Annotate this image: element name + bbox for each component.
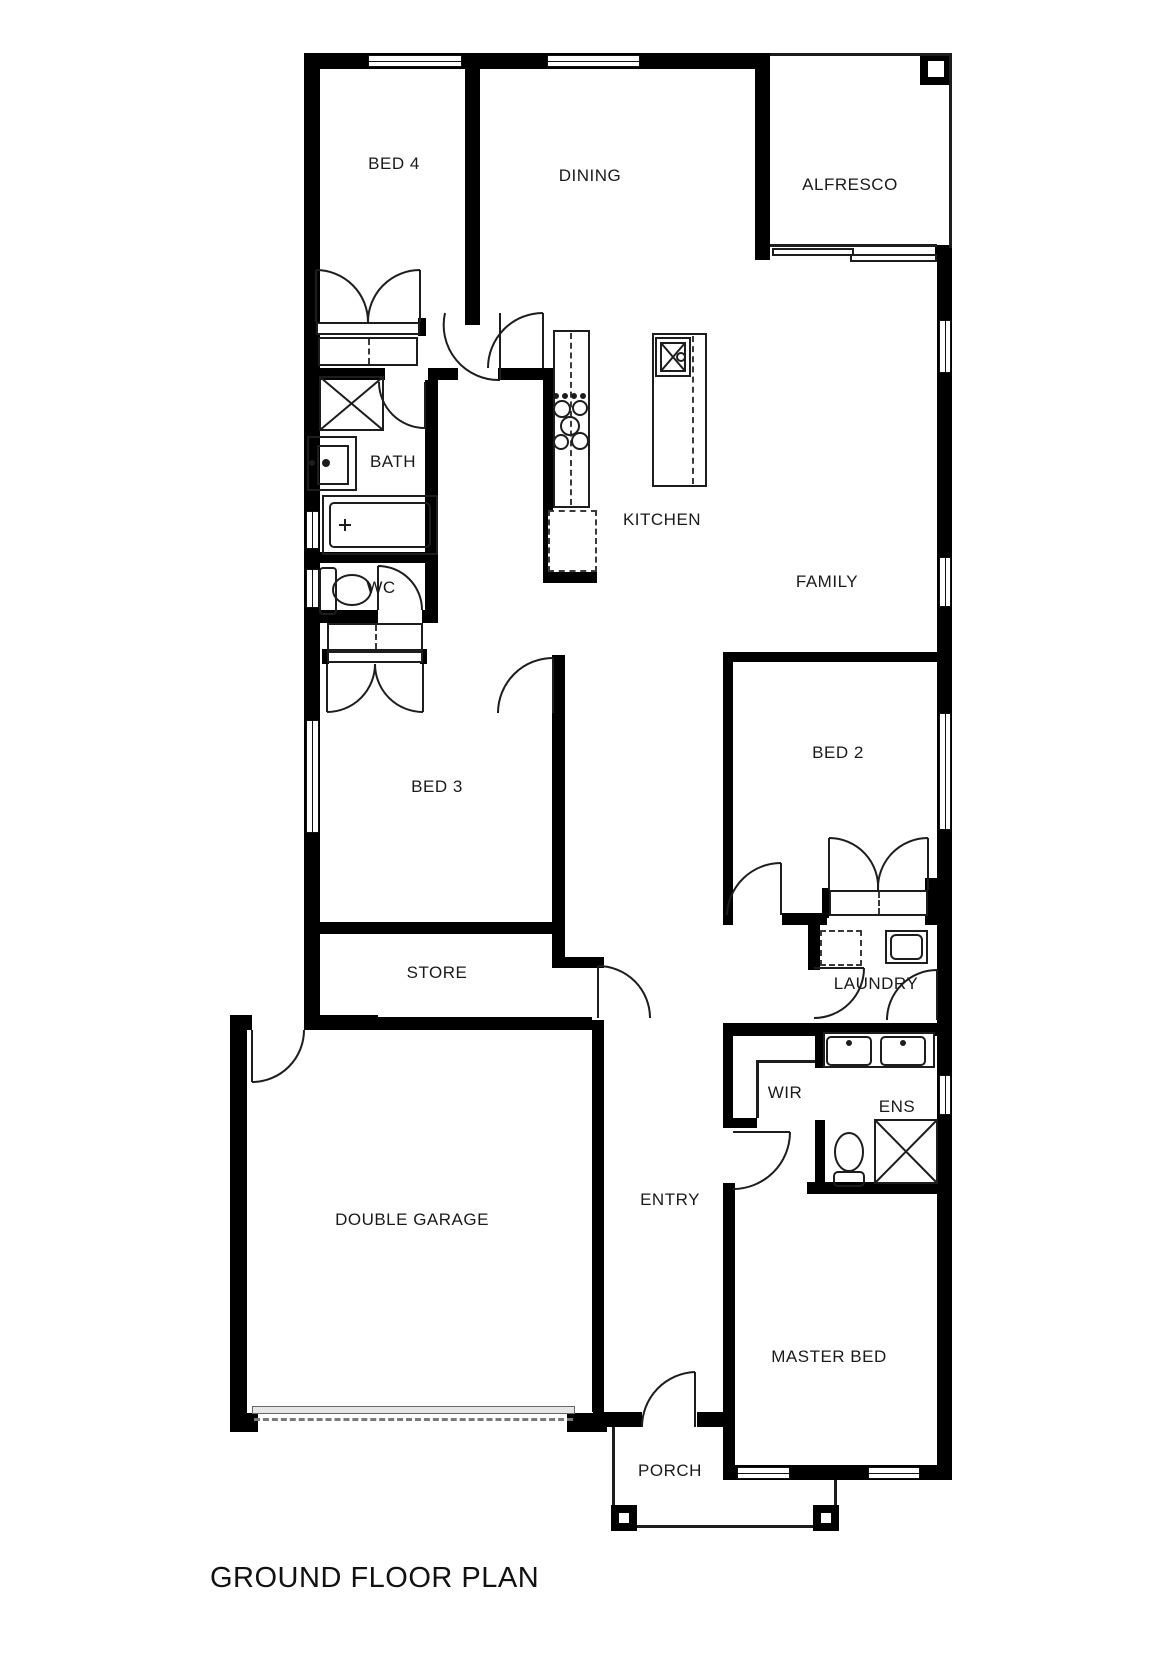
bath-door <box>379 382 425 428</box>
room-label-bath: BATH <box>370 452 416 472</box>
wall-bed2-west <box>723 652 733 925</box>
bed2-robe-cap-left <box>822 888 829 918</box>
window-family-upper <box>939 320 951 373</box>
laundry-tub-basin <box>890 934 923 960</box>
window-bed4 <box>368 55 462 67</box>
room-label-master: MASTER BED <box>771 1347 887 1367</box>
window-dining <box>547 55 640 67</box>
window-bed3 <box>306 720 319 833</box>
wall-wir-south-stub <box>723 1118 757 1128</box>
wall-hall-north-a <box>320 368 385 380</box>
room-label-store: STORE <box>407 963 468 983</box>
wall-laundry-west <box>808 925 820 970</box>
room-label-bed4: BED 4 <box>368 154 420 174</box>
garage-door-swing-line <box>254 1418 573 1421</box>
wall-alfresco-left <box>755 53 770 260</box>
room-label-porch: PORCH <box>638 1461 702 1481</box>
wall-garage-front-left <box>230 1413 258 1432</box>
room-label-entry: ENTRY <box>640 1190 700 1210</box>
porch-post-right <box>813 1505 839 1531</box>
bed2-robe-door-left <box>829 838 878 890</box>
bed3-robe-divider <box>375 625 377 649</box>
stacker-door-panel-2 <box>850 254 937 262</box>
ens-vanity-bench <box>823 1032 935 1068</box>
window-family-lower <box>939 557 951 607</box>
wall-central-jog <box>552 957 604 968</box>
window-bed2 <box>939 713 951 830</box>
wall-right-exterior <box>937 247 952 1480</box>
bed3-robe-door-right <box>375 664 423 712</box>
wall-bath-east <box>425 380 438 623</box>
wir-shelf-line-v <box>756 1060 759 1118</box>
bed3-robe-door-left <box>327 664 375 712</box>
bathtub-icon <box>323 496 437 554</box>
room-label-bed2: BED 2 <box>812 743 864 763</box>
wall-bed3-store <box>320 922 558 934</box>
wall-kitchen-south <box>543 572 597 583</box>
floor-plan: BED 4 DINING ALFRESCO BATH KITCHEN WC FA… <box>0 0 1170 1655</box>
window-ens <box>939 1075 951 1115</box>
alfresco-pillar <box>920 53 952 85</box>
garage-access-door <box>252 1030 304 1082</box>
window-master-right <box>868 1467 920 1479</box>
room-label-ens: ENS <box>879 1097 915 1117</box>
wall-bed4-dining <box>465 69 480 325</box>
alfresco-outline-bottom <box>770 244 937 247</box>
porch-post-left <box>611 1505 637 1531</box>
bed3-door <box>498 658 553 713</box>
bed4-robe-divider <box>368 339 370 364</box>
wall-wc-south-b <box>422 610 438 623</box>
alfresco-outline-top <box>770 53 952 56</box>
wall-bath-wc <box>308 552 438 563</box>
wall-ens-south <box>807 1182 952 1194</box>
wall-store-south <box>378 1017 592 1030</box>
wall-front-b <box>697 1412 723 1427</box>
room-label-laundry: LAUNDRY <box>834 974 918 994</box>
room-label-family: FAMILY <box>796 572 858 592</box>
wall-hall-north-b <box>428 368 458 380</box>
wall-wir-west <box>723 1027 733 1127</box>
wall-bed2-south-b <box>782 913 827 925</box>
wc-toilet-icon <box>320 568 371 614</box>
hall-dining-door <box>488 313 543 368</box>
wall-central-hall <box>552 655 565 957</box>
wall-garage-north-b <box>312 1015 378 1030</box>
bath-shower-icon <box>320 377 383 430</box>
kitchen-pantry <box>548 510 597 572</box>
room-label-garage: DOUBLE GARAGE <box>335 1210 489 1230</box>
kitchen-bench-centerline <box>570 333 572 505</box>
wall-entry-west <box>592 1020 604 1412</box>
room-label-kitchen: KITCHEN <box>623 510 701 530</box>
garage-panel-door <box>252 1406 575 1414</box>
wall-bed2-south-a <box>723 913 729 925</box>
room-label-bed3: BED 3 <box>411 777 463 797</box>
kitchen-island-centerline <box>692 336 694 484</box>
laundry-washer-space <box>820 930 862 966</box>
ens-shower-icon <box>875 1120 937 1183</box>
wall-front-a <box>593 1412 642 1427</box>
wall-wc-south-a <box>320 610 378 623</box>
room-label-wir: WIR <box>768 1083 803 1103</box>
bed4-robe-door-left <box>316 270 368 322</box>
bed2-robe-divider <box>878 892 880 914</box>
wall-garage-north-a <box>230 1015 252 1030</box>
porch-outline-bottom <box>612 1525 838 1528</box>
door-and-fixture-overlay <box>0 0 1170 1655</box>
store-door <box>598 966 650 1018</box>
stacker-door-panel-1 <box>772 248 854 256</box>
ens-toilet-icon <box>834 1133 864 1186</box>
bed2-door <box>727 863 781 915</box>
room-label-alfresco: ALFRESCO <box>802 175 898 195</box>
wir-shelf-line-h <box>757 1060 815 1063</box>
wall-bed2-north <box>723 652 937 662</box>
alfresco-outline-right <box>949 53 952 248</box>
wall-garage-west <box>230 1015 247 1432</box>
page-title: GROUND FLOOR PLAN <box>210 1562 539 1595</box>
kitchen-island <box>652 333 707 487</box>
bed3-robe-rail <box>327 651 423 663</box>
window-wc <box>306 569 319 608</box>
wall-master-west <box>723 1183 735 1465</box>
bed2-robe-door-right <box>878 838 928 890</box>
window-bath <box>306 511 319 549</box>
room-label-wc: WC <box>366 578 395 598</box>
window-master-left <box>737 1467 790 1479</box>
room-label-dining: DINING <box>559 166 622 186</box>
master-door <box>733 1132 790 1189</box>
bed4-robe-door-right <box>368 270 420 322</box>
wall-hall-north-c <box>498 368 543 380</box>
front-door <box>642 1372 695 1427</box>
bed4-robe-rail <box>316 322 420 335</box>
